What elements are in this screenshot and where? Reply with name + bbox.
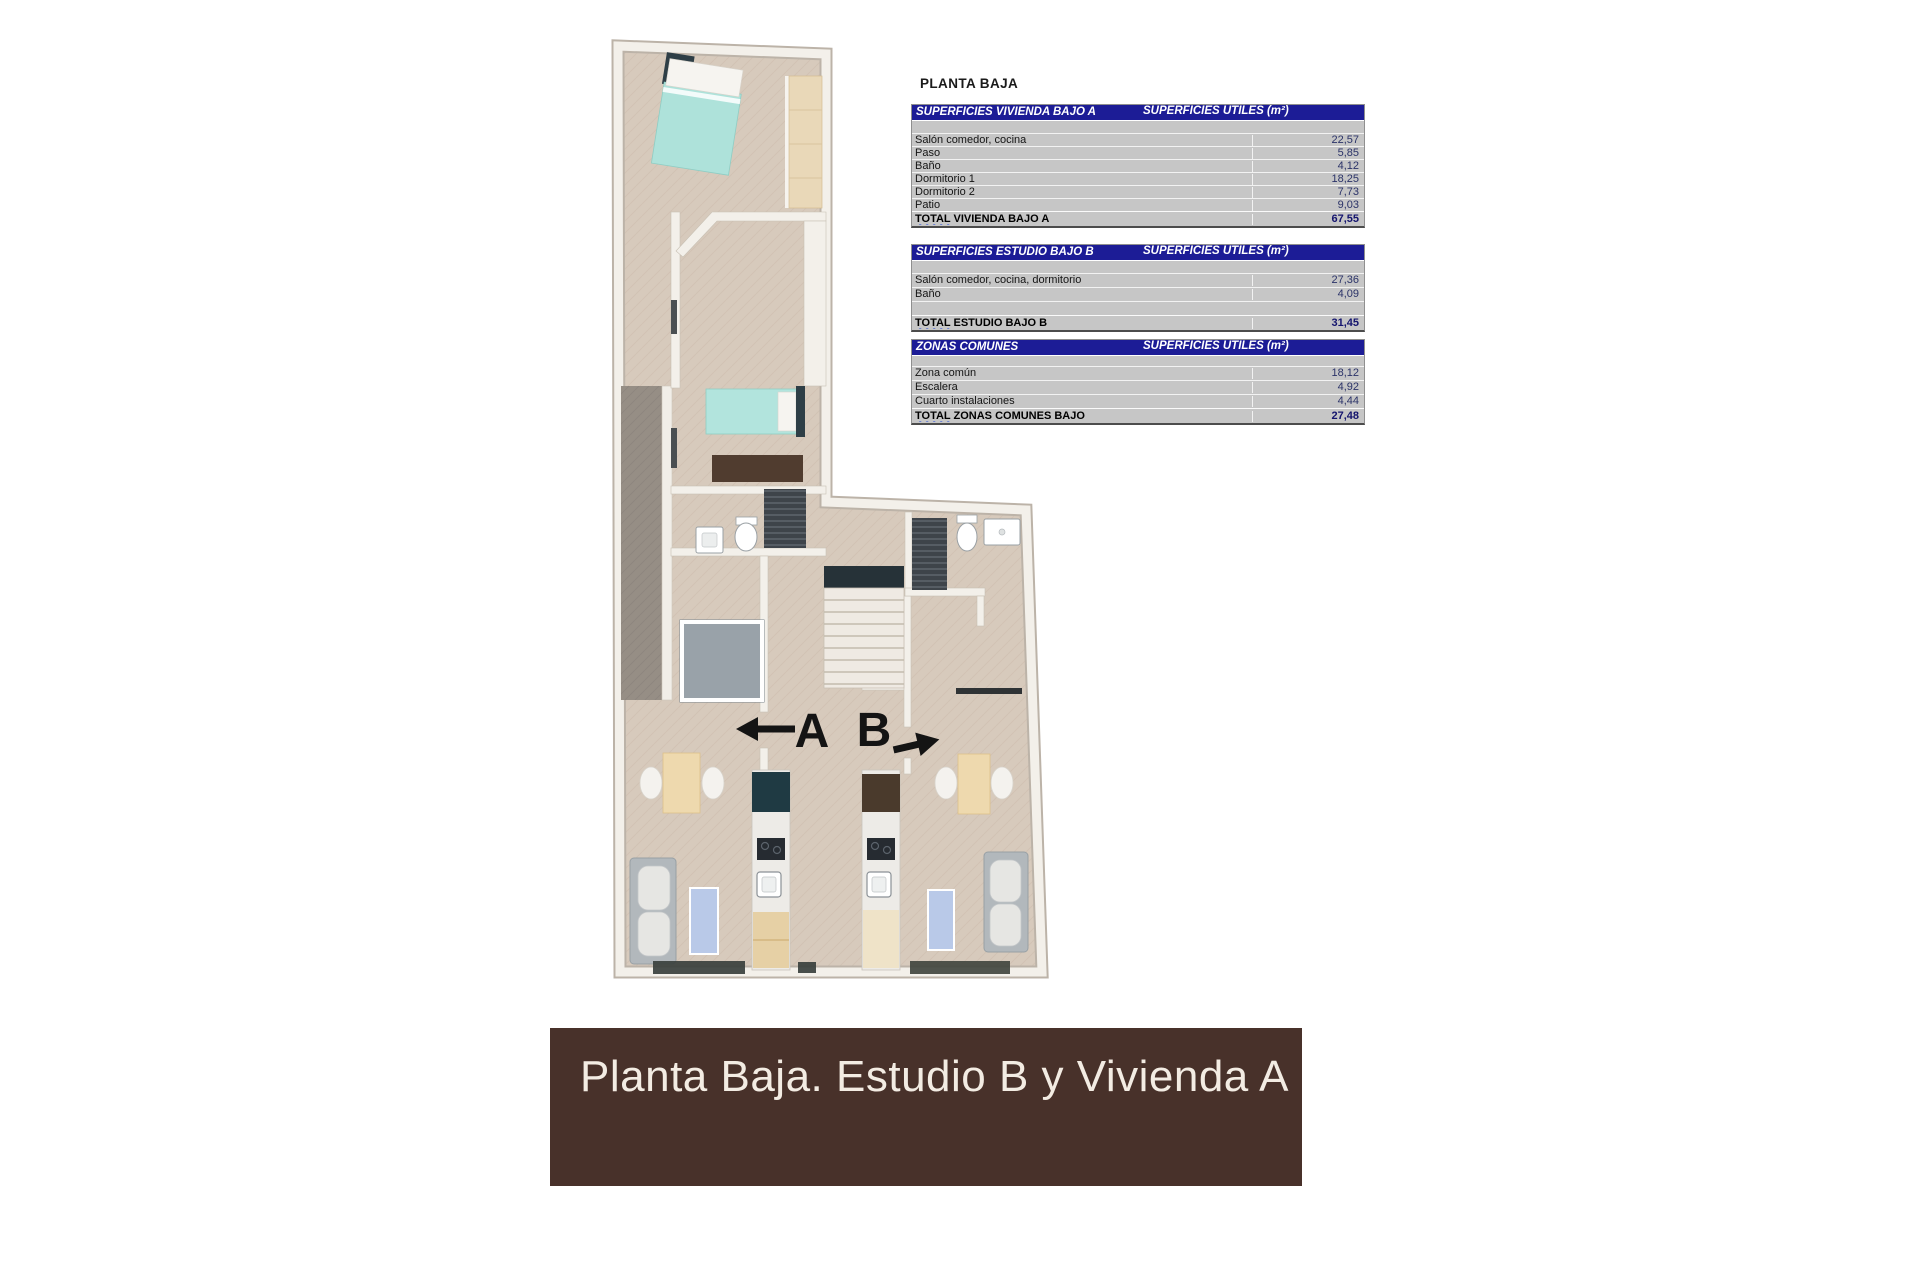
table-row (912, 301, 1364, 315)
wardrobe-icon (785, 76, 822, 208)
unit-a-label: A (795, 705, 830, 758)
toilet-icon (735, 523, 757, 551)
table-header-units: SUPERFICIES UTILES (m²) (1143, 106, 1289, 118)
table-header-title: SUPERFICIES ESTUDIO BAJO B (916, 247, 1094, 259)
table-row: Cuarto instalaciones 4,44 (912, 394, 1364, 408)
table-header-title: ZONAS COMUNES (916, 342, 1018, 354)
table-row: Zona común 18,12 (912, 366, 1364, 380)
spacer-row (912, 121, 1364, 133)
sofa-b-icon (984, 852, 1028, 952)
rug-b-icon (928, 890, 954, 950)
table-total-row: TOTAL VIVIENDA BAJO A 67,55 (912, 211, 1364, 226)
table-header-units: SUPERFICIES UTILES (m²) (1143, 246, 1289, 258)
window-slit-icon (671, 428, 677, 468)
toilet-icon (957, 515, 977, 523)
table-row: Patio 9,03 (912, 198, 1364, 211)
table-row: Paso 5,85 (912, 146, 1364, 159)
caption-banner: Planta Baja. Estudio B y Vivienda A (550, 1028, 1302, 1186)
window-slit-icon (671, 300, 677, 334)
toilet-icon (957, 523, 977, 551)
table-header-units: SUPERFICIES UTILES (m²) (1143, 341, 1289, 353)
sheet-title: PLANTA BAJA (920, 76, 1018, 91)
table-header: ZONAS COMUNES SUPERFICIES UTILES (m²) (912, 340, 1364, 356)
kitchen-b-icon (862, 770, 900, 970)
table-row: Baño 4,09 (912, 287, 1364, 301)
table-header: SUPERFICIES ESTUDIO BAJO B SUPERFICIES U… (912, 245, 1364, 261)
table-estudio-bajo-b: SUPERFICIES ESTUDIO BAJO B SUPERFICIES U… (911, 244, 1365, 332)
table-row: Baño 4,12 (912, 159, 1364, 172)
table-header-title: SUPERFICIES VIVIENDA BAJO A (916, 107, 1096, 119)
table-row: Salón comedor, cocina 22,57 (912, 133, 1364, 146)
rug-a-icon (690, 888, 718, 954)
caption-text: Planta Baja. Estudio B y Vivienda A (580, 1052, 1289, 1102)
spacer-row (912, 261, 1364, 273)
table-row: Dormitorio 2 7,73 (912, 185, 1364, 198)
unit-b-label: B (857, 704, 892, 757)
dresser-icon (712, 455, 803, 482)
table-total-row: TOTAL ZONAS COMUNES BAJO 27,48 (912, 408, 1364, 423)
page: A B PLANTA BAJA SUPERFICIES VIVIENDA BAJ… (0, 0, 1920, 1280)
stair-grate-icon (764, 489, 806, 548)
stair-grate-icon (912, 518, 947, 590)
table-zonas-comunes: ZONAS COMUNES SUPERFICIES UTILES (m²) Zo… (911, 339, 1365, 425)
spacer-row (912, 356, 1364, 366)
table-row: Dormitorio 1 18,25 (912, 172, 1364, 185)
table-vivienda-bajo-a: SUPERFICIES VIVIENDA BAJO A SUPERFICIES … (911, 104, 1365, 228)
dormitorio2-bed-icon (706, 386, 805, 437)
kitchen-a-icon (752, 770, 790, 970)
table-row: Escalera 4,92 (912, 380, 1364, 394)
utility-room-icon (680, 620, 764, 702)
wall-shelf-icon (956, 688, 1022, 694)
patio-area (621, 386, 672, 700)
table-header: SUPERFICIES VIVIENDA BAJO A SUPERFICIES … (912, 105, 1364, 121)
sofa-a-icon (630, 858, 676, 964)
table-row: Salón comedor, cocina, dormitorio 27,36 (912, 273, 1364, 287)
table-total-row: TOTAL ESTUDIO BAJO B 31,45 (912, 315, 1364, 330)
staircase-icon (824, 566, 904, 688)
